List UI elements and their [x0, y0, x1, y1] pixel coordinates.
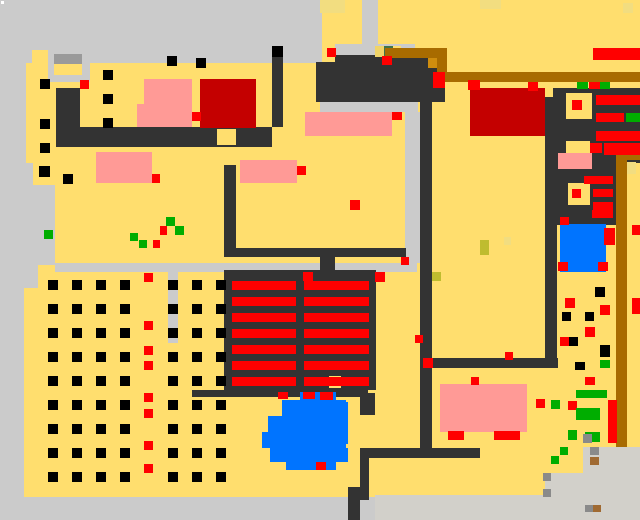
- crop-dot: [192, 400, 202, 410]
- rock-rect: [585, 505, 593, 512]
- wall-rect: [348, 487, 360, 520]
- white-rect: [1, 1, 4, 4]
- item-rect: [304, 297, 369, 306]
- crop-rect: [103, 94, 113, 104]
- crop-rect: [63, 174, 73, 184]
- crop-dot: [168, 304, 178, 314]
- plant-rect: [551, 456, 559, 464]
- item-dot: [144, 464, 153, 473]
- path-rect: [362, 0, 378, 48]
- bed-rect: [305, 112, 392, 136]
- wall-rect: [272, 57, 283, 127]
- item-rect: [80, 80, 89, 89]
- wall-rect: [366, 448, 480, 458]
- crop-dot: [192, 304, 202, 314]
- crop-dot: [48, 304, 58, 314]
- item-rect: [382, 56, 392, 65]
- crop-dot: [48, 280, 58, 290]
- rock-rect: [543, 473, 551, 481]
- crop-dot: [96, 328, 106, 338]
- item-rect: [632, 225, 640, 235]
- sand-rect: [504, 237, 511, 245]
- crop-dot: [72, 328, 82, 338]
- plant-rect: [600, 82, 610, 89]
- crop-rect: [600, 345, 610, 357]
- wood-rect: [616, 150, 627, 447]
- item-rect: [598, 262, 608, 271]
- item-rect: [350, 200, 360, 210]
- item-rect: [596, 95, 640, 105]
- crop-dot: [120, 400, 130, 410]
- crop-dot: [120, 328, 130, 338]
- crop-dot: [48, 328, 58, 338]
- item-rect: [304, 313, 369, 322]
- item-rect: [316, 462, 326, 470]
- dirt-rect: [593, 505, 601, 512]
- crop-dot: [168, 472, 178, 482]
- item-rect: [632, 298, 640, 314]
- crop-rect: [103, 70, 113, 80]
- item-rect: [392, 112, 402, 120]
- item-rect: [278, 392, 288, 399]
- item-rect: [448, 431, 464, 440]
- item-rect: [572, 189, 581, 198]
- crop-rect: [595, 287, 605, 297]
- crop-dot: [168, 424, 178, 434]
- wall-rect: [420, 93, 432, 450]
- sand-rect: [480, 0, 501, 9]
- plant-rect: [600, 360, 610, 368]
- item-dot: [144, 346, 153, 355]
- crop-dot: [216, 280, 226, 290]
- item-rect: [600, 305, 610, 315]
- carpet-rect: [200, 79, 256, 128]
- item-rect: [589, 82, 600, 89]
- path-rect: [0, 185, 55, 265]
- item-rect: [585, 327, 595, 337]
- wall-rect: [320, 248, 335, 272]
- item-rect: [565, 298, 575, 308]
- item-rect: [304, 377, 369, 386]
- crop-dot: [48, 352, 58, 362]
- item-rect: [433, 72, 445, 88]
- crop-dot: [192, 280, 202, 290]
- item-rect: [415, 335, 423, 343]
- item-rect: [160, 226, 167, 235]
- crop-dot: [120, 304, 130, 314]
- crop-dot: [72, 352, 82, 362]
- crop-dot: [72, 400, 82, 410]
- crop-dot: [192, 448, 202, 458]
- item-rect: [304, 361, 369, 370]
- crop-rect: [39, 166, 50, 177]
- wall-rect: [224, 165, 236, 248]
- item-rect: [401, 257, 409, 265]
- item-dot: [144, 361, 153, 370]
- crop-dot: [72, 424, 82, 434]
- item-rect: [192, 112, 201, 121]
- crop-dot: [120, 424, 130, 434]
- crop-dot: [168, 448, 178, 458]
- crop-dot: [72, 448, 82, 458]
- item-rect: [628, 147, 638, 155]
- wall-rect: [224, 248, 406, 257]
- path-rect: [0, 63, 26, 163]
- plant-rect: [626, 113, 640, 122]
- item-rect: [232, 361, 296, 370]
- item-rect: [560, 217, 569, 225]
- crop-rect: [569, 337, 578, 346]
- plant-rect: [551, 400, 560, 409]
- plant-rect: [560, 447, 568, 455]
- rock-rect: [543, 489, 551, 497]
- item-rect: [303, 272, 313, 281]
- crop-dot: [96, 304, 106, 314]
- path-rect: [320, 102, 418, 112]
- wood-rect: [385, 48, 447, 58]
- wall-rect: [56, 88, 80, 127]
- crop-dot: [72, 280, 82, 290]
- crop-dot: [96, 376, 106, 386]
- item-rect: [471, 377, 479, 385]
- sand-rect: [623, 3, 633, 13]
- rock-rect: [583, 434, 592, 443]
- crop-dot: [192, 424, 202, 434]
- water-rect: [262, 432, 346, 448]
- roof-rect: [54, 54, 82, 64]
- item-rect: [572, 100, 582, 110]
- crop-dot: [168, 280, 178, 290]
- crop-dot: [72, 304, 82, 314]
- crop-dot: [120, 472, 130, 482]
- crop-dot: [192, 328, 202, 338]
- item-rect: [558, 262, 568, 271]
- item-rect: [327, 48, 336, 57]
- crop-dot: [216, 328, 226, 338]
- hay-rect: [480, 240, 489, 255]
- plant-rect: [576, 390, 607, 398]
- path2-rect: [545, 473, 640, 497]
- item-rect: [604, 228, 615, 245]
- wall-rect: [432, 358, 558, 368]
- crop-dot: [96, 448, 106, 458]
- item-rect: [304, 345, 369, 354]
- crop-rect: [562, 312, 571, 321]
- water-rect: [270, 448, 348, 462]
- crop-dot: [168, 352, 178, 362]
- bed-rect: [137, 104, 192, 127]
- map-canvas[interactable]: [0, 0, 640, 520]
- item-rect: [232, 329, 296, 338]
- water-rect: [286, 462, 336, 470]
- item-rect: [232, 377, 296, 386]
- crop-dot: [216, 376, 226, 386]
- item-rect: [560, 337, 569, 346]
- item-rect: [304, 329, 369, 338]
- crop-dot: [216, 424, 226, 434]
- item-rect: [596, 113, 624, 122]
- floor-rect: [32, 50, 48, 63]
- crop-dot: [168, 400, 178, 410]
- item-rect: [303, 392, 315, 399]
- crop-dot: [96, 352, 106, 362]
- crop-dot: [96, 280, 106, 290]
- crop-rect: [575, 362, 585, 370]
- sand-rect: [320, 0, 345, 13]
- path-rect: [0, 265, 38, 288]
- hay-rect: [432, 272, 441, 281]
- crop-dot: [120, 448, 130, 458]
- item-rect: [608, 400, 617, 443]
- crop-rect: [103, 118, 113, 128]
- crop-dot: [216, 352, 226, 362]
- crop-dot: [216, 304, 226, 314]
- rock-rect: [590, 447, 599, 455]
- path-rect: [0, 163, 33, 185]
- crop-dot: [120, 352, 130, 362]
- item-rect: [593, 189, 613, 197]
- crop-rect: [40, 119, 50, 129]
- crop-dot: [168, 376, 178, 386]
- path-rect: [405, 112, 420, 263]
- item-rect: [423, 358, 433, 368]
- item-dot: [144, 441, 153, 450]
- crop-rect: [585, 312, 594, 321]
- item-dot: [144, 321, 153, 330]
- carpet-rect: [470, 88, 545, 136]
- item-rect: [584, 176, 613, 184]
- bed-rect: [96, 152, 152, 183]
- item-dot: [144, 273, 153, 282]
- plant-rect: [166, 217, 175, 226]
- item-rect: [232, 297, 296, 306]
- crop-dot: [192, 376, 202, 386]
- item-rect: [596, 131, 640, 141]
- item-dot: [144, 393, 153, 402]
- plant-rect: [576, 408, 600, 420]
- water-rect: [336, 402, 348, 444]
- item-rect: [590, 143, 602, 153]
- item-rect: [232, 345, 296, 354]
- crop-dot: [72, 376, 82, 386]
- crop-dot: [192, 472, 202, 482]
- item-rect: [536, 399, 545, 408]
- crop-rect: [196, 58, 206, 68]
- crop-dot: [216, 400, 226, 410]
- crop-rect: [40, 79, 50, 89]
- item-rect: [494, 431, 520, 440]
- plant-rect: [577, 82, 588, 89]
- item-rect: [375, 272, 385, 282]
- wall-rect: [56, 127, 272, 147]
- bed-rect: [144, 79, 192, 104]
- item-dot: [144, 409, 153, 418]
- crop-dot: [96, 424, 106, 434]
- wall-rect: [360, 448, 369, 500]
- crop-dot: [96, 472, 106, 482]
- path-rect: [0, 288, 24, 498]
- crop-dot: [72, 472, 82, 482]
- floor-rect: [54, 64, 82, 75]
- item-rect: [152, 174, 160, 183]
- sand-rect: [627, 162, 636, 174]
- crop-dot: [192, 352, 202, 362]
- plant-rect: [44, 230, 53, 239]
- bed-rect: [440, 384, 527, 432]
- crop-rect: [272, 46, 283, 57]
- crop-dot: [120, 376, 130, 386]
- plant-rect: [139, 240, 147, 248]
- crop-dot: [96, 400, 106, 410]
- plant-rect: [130, 233, 138, 241]
- bed-rect: [558, 153, 592, 169]
- crop-dot: [120, 280, 130, 290]
- item-rect: [304, 281, 369, 290]
- item-rect: [153, 240, 160, 248]
- crop-dot: [48, 472, 58, 482]
- item-rect: [320, 392, 333, 400]
- crop-dot: [168, 328, 178, 338]
- item-rect: [528, 82, 538, 91]
- crop-dot: [216, 472, 226, 482]
- crop-rect: [167, 56, 177, 66]
- item-rect: [232, 281, 296, 290]
- item-rect: [585, 377, 595, 385]
- item-rect: [505, 352, 513, 360]
- item-rect: [593, 48, 640, 60]
- crop-dot: [48, 376, 58, 386]
- floor-rect: [217, 129, 236, 145]
- crop-dot: [48, 400, 58, 410]
- crop-dot: [216, 448, 226, 458]
- wall-rect: [360, 393, 375, 415]
- crop-dot: [48, 448, 58, 458]
- item-rect: [468, 80, 480, 90]
- bed-rect: [240, 160, 297, 183]
- crop-rect: [40, 143, 50, 153]
- plant-rect: [175, 226, 184, 235]
- crop-dot: [48, 424, 58, 434]
- item-rect: [297, 166, 306, 175]
- item-rect: [592, 210, 613, 218]
- dirt-rect: [590, 457, 599, 465]
- item-rect: [593, 202, 613, 210]
- item-rect: [232, 313, 296, 322]
- plant-rect: [568, 430, 577, 440]
